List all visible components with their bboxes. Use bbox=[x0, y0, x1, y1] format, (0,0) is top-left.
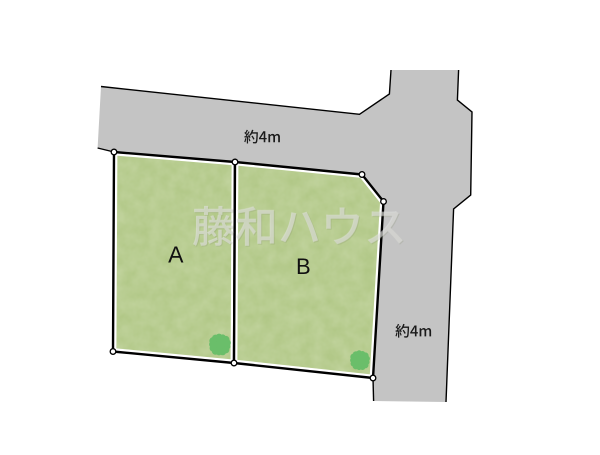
svg-text:A: A bbox=[168, 241, 184, 267]
svg-text:B: B bbox=[296, 254, 311, 279]
